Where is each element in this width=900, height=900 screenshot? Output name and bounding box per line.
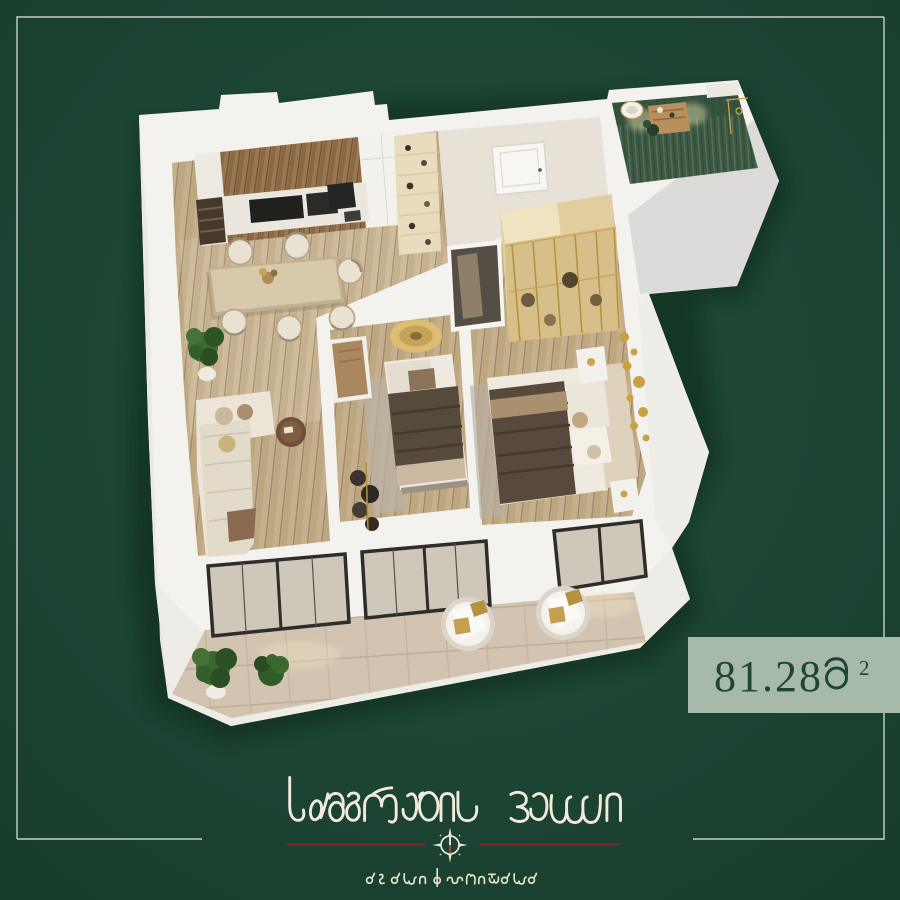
svg-text:2: 2 <box>859 656 870 680</box>
svg-text:81.28: 81.28 <box>714 652 823 701</box>
